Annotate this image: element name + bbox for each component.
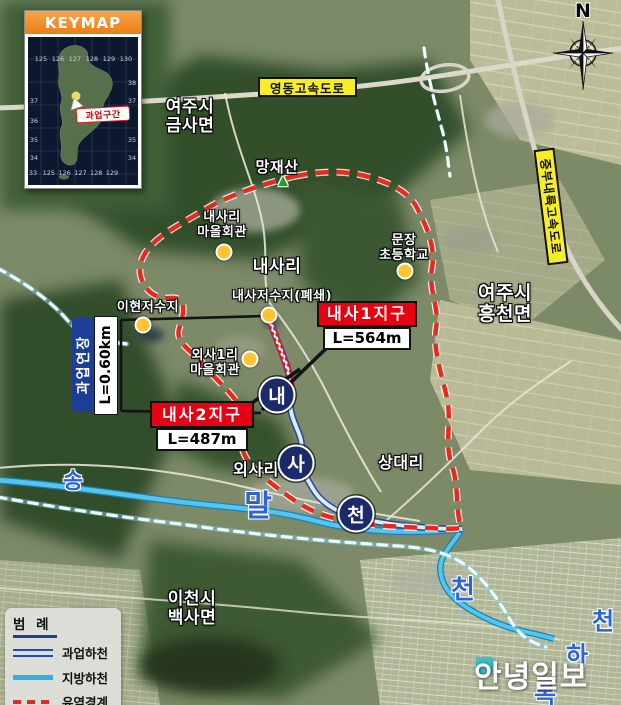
keymap-lat-right-1: 37 <box>128 97 136 105</box>
legend-items: 과업하천지방하천유역경계읍면동경계 <box>13 643 113 705</box>
legend-title: 범 례 <box>13 613 113 633</box>
compass-star-icon <box>553 21 613 90</box>
legend-label-0: 과업하천 <box>62 643 108 662</box>
keymap-lon-bottom-5: 129 <box>106 169 118 177</box>
legend-label-1: 지방하천 <box>62 668 108 687</box>
keymap-lat-left-0: 37 <box>30 97 38 105</box>
district2-length: L=487m <box>156 428 248 451</box>
keymap-lat-left-1: 36 <box>30 117 38 125</box>
keymap-lat-right-3: 34 <box>128 154 136 162</box>
compass-rose: N <box>546 0 620 96</box>
callout-district2: 내사2지구 L=487m <box>150 401 254 451</box>
keymap-lat-right-0: 38 <box>128 79 136 87</box>
keymap-lat-right-2: 35 <box>128 136 136 144</box>
keymap-lon-top-2: 127 <box>69 55 81 63</box>
compass-north-letter: N <box>575 0 591 22</box>
keymap-title: KEYMAP <box>25 11 141 34</box>
district1-title: 내사1지구 <box>317 301 417 327</box>
keymap-map: 과업구간 12512612712812913037363534383735343… <box>28 37 138 185</box>
watermark-text: 안녕일보 <box>474 652 588 696</box>
label-yeongdong-expressway: 영동고속도로 <box>258 77 357 97</box>
keymap-lat-left-2: 35 <box>30 136 38 144</box>
legend-symbol-solid <box>13 675 53 680</box>
keymap-lon-top-1: 126 <box>52 55 64 63</box>
legend-item-0: 과업하천 <box>13 643 113 662</box>
district1-length: L=564m <box>323 327 411 350</box>
legend-item-1: 지방하천 <box>13 668 113 687</box>
legend-item-2: 유역경계 <box>13 692 113 705</box>
legend-symbol-reddash <box>13 700 53 704</box>
korea-landmass <box>59 45 113 165</box>
extent-length-box: L=0.60km <box>94 316 118 415</box>
keymap-lon-top-5: 130 <box>120 55 132 63</box>
callout-district1: 내사1지구 L=564m <box>317 301 417 350</box>
keymap-lon-bottom-4: 128 <box>90 169 102 177</box>
keymap-lon-bottom-0: 33 <box>29 169 37 177</box>
project-location-dot <box>72 92 81 101</box>
keymap-marker-label: 과업구간 <box>76 106 131 124</box>
extent-title: 과업연장 <box>72 318 94 411</box>
keymap-lon-bottom-1: 125 <box>43 169 55 177</box>
extent-length: L=0.60km <box>95 317 116 413</box>
legend-label-2: 유역경계 <box>62 692 108 705</box>
satellite-map: 여주시 금사면망재산▲내사리 마을회관내사리문장 초등학교여주시 흥천면내사저수… <box>0 0 621 705</box>
keymap-lon-top-0: 125 <box>35 55 47 63</box>
legend-symbol-double <box>13 649 53 657</box>
legend-panel: 범 례 과업하천지방하천유역경계읍면동경계 <box>5 608 121 705</box>
keymap-lon-bottom-3: 127 <box>74 169 86 177</box>
district2-title: 내사2지구 <box>150 401 254 428</box>
keymap-lat-left-3: 34 <box>30 154 38 162</box>
keymap-lon-top-4: 129 <box>103 55 115 63</box>
legend-underline <box>13 635 57 638</box>
keymap-lon-bottom-2: 126 <box>58 169 70 177</box>
extent-title-box: 과업연장 <box>72 318 94 411</box>
keymap-lon-top-3: 128 <box>86 55 98 63</box>
keymap-panel: KEYMAP 과업구간 1251261271281291303736353438… <box>24 10 142 189</box>
